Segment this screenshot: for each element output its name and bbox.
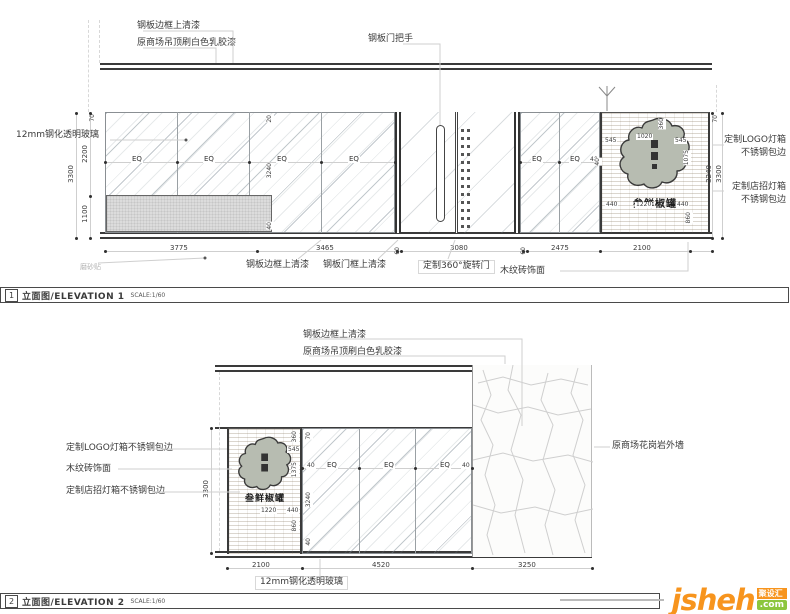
eq-label: EQ — [131, 156, 143, 163]
dim-3250: 3250 — [518, 562, 536, 569]
elevation-2-scale: SCALE:1/60 — [131, 598, 166, 605]
annotation-door-handle: 钢板门把手 — [368, 35, 413, 45]
dim-40: 40 — [594, 158, 602, 166]
dim-60: 60 — [395, 247, 401, 255]
annotation-sign-lightbox: 定制店招灯箱不锈钢包边 — [66, 487, 165, 497]
dim-4520: 4520 — [372, 562, 390, 569]
ceiling-line — [100, 63, 712, 70]
mullion — [559, 112, 560, 233]
annotation-frame-varnish-top: 钢板边框上清漆 — [137, 22, 200, 32]
extension-line — [219, 372, 220, 551]
wood-tile-logo-wall — [600, 112, 710, 233]
annotation-logo-lightbox: 定制LOGO灯箱不锈钢包边 — [66, 444, 173, 454]
dim-3300: 3300 — [203, 480, 210, 498]
dim-70: 70 — [305, 432, 313, 440]
dim-40: 40 — [306, 463, 316, 469]
annotation-revolving-door: 定制360°旋转门 — [418, 260, 495, 274]
eq-label: EQ — [203, 156, 215, 163]
watermark-cn-badge: 聚设汇 — [757, 588, 787, 599]
eq-label: EQ — [276, 156, 288, 163]
eq-label: EQ — [439, 462, 451, 469]
mullion — [359, 428, 360, 554]
annotation-tempered-glass: 12mm钢化透明玻璃 — [255, 576, 348, 590]
annotation-frosted-film: 磨砂贴 — [80, 264, 101, 272]
dim-60: 60 — [521, 247, 527, 255]
dim-360: 360 — [658, 118, 666, 129]
dim-545: 545 — [287, 447, 300, 453]
floor-line — [100, 232, 712, 239]
eq-label: EQ — [569, 156, 581, 163]
watermark-rule — [560, 599, 664, 601]
logo-text: 叁鲜椒罐 — [229, 491, 301, 504]
dim-860: 860 — [291, 520, 299, 531]
elevation-1-index: 1 — [5, 289, 18, 302]
elevation-2-index: 2 — [5, 595, 18, 608]
door-stile — [455, 112, 458, 233]
dim-3300: 3300 — [716, 165, 723, 183]
annotation-logo-lightbox-2: 不锈钢包边 — [716, 149, 786, 159]
dim-40: 40 — [305, 538, 313, 546]
dim-3465: 3465 — [316, 245, 334, 252]
eq-label: EQ — [348, 156, 360, 163]
granite-wall — [472, 365, 592, 557]
dim-2100: 2100 — [633, 245, 651, 252]
dim-3775: 3775 — [170, 245, 188, 252]
dim-1375: 1375 — [291, 462, 299, 477]
drawing-sheet: 叁鲜椒罐 EQ EQ EQ EQ EQ EQ 40 70 2200 1100 3… — [0, 0, 790, 614]
watermark-brand: jsheh — [672, 588, 755, 613]
elevation-1-title: 立面图/ELEVATION 1 — [22, 289, 125, 302]
dim-70: 70 — [713, 115, 719, 123]
eq-label: EQ — [326, 462, 338, 469]
dim-40: 40 — [461, 463, 471, 469]
mullion — [415, 428, 416, 554]
dim-20: 20 — [266, 115, 274, 123]
annotation-frame-varnish-top: 钢板边框上清漆 — [303, 331, 366, 341]
elevation-2-titlebar: 2 立面图/ELEVATION 2 SCALE:1/60 — [0, 593, 660, 609]
watermark-com-badge: .com — [757, 600, 787, 610]
dim-2475: 2475 — [551, 245, 569, 252]
annotation-ceiling-paint: 原商场吊顶刷白色乳胶漆 — [137, 39, 236, 49]
dim-3240: 3240 — [266, 163, 274, 178]
extension-line — [716, 85, 717, 112]
elevation-1-scale: SCALE:1/60 — [131, 292, 166, 299]
extension-line — [99, 20, 100, 63]
dim-40: 40 — [266, 222, 274, 230]
eq-label: EQ — [383, 462, 395, 469]
annotation-door-frame-varnish: 钢板门框上清漆 — [323, 261, 386, 271]
glass-panel — [302, 428, 472, 554]
annotation-granite-wall: 原商场花岗岩外墙 — [612, 442, 684, 452]
dim-2200: 2200 — [82, 145, 89, 163]
eq-label: EQ — [531, 156, 543, 163]
dim-1075: 1075 — [683, 150, 691, 165]
frosted-counter-panel — [106, 195, 272, 232]
door-post-left — [395, 112, 401, 233]
dim-1020: 1020 — [636, 134, 653, 140]
dim-1100: 1100 — [82, 205, 89, 223]
dim-3240: 3240 — [706, 165, 713, 183]
ceiling-line — [215, 365, 472, 372]
dim-360: 360 — [291, 431, 299, 442]
dim-440: 440 — [286, 508, 299, 514]
dim-440: 440 — [605, 202, 618, 208]
elevation-1-titlebar: 1 立面图/ELEVATION 1 SCALE:1/60 — [0, 287, 789, 303]
dim-1220: 1220 — [260, 508, 277, 514]
door-handle-shape — [436, 125, 445, 222]
dim-1220: 1220 — [635, 202, 652, 208]
watermark: jsheh 聚设汇 .com — [672, 588, 788, 613]
annotation-frame-varnish-bottom: 钢板边框上清漆 — [246, 261, 309, 271]
annotation-wood-tile: 木纹砖饰面 — [500, 267, 545, 277]
mullion — [321, 112, 322, 233]
annotation-tempered-glass: 12mm钢化透明玻璃 — [16, 131, 99, 141]
annotation-logo-lightbox: 定制LOGO灯箱 — [716, 136, 786, 146]
dim-440: 440 — [676, 202, 689, 208]
extension-line — [88, 20, 89, 112]
dim-3080: 3080 — [450, 245, 468, 252]
annotation-wood-tile: 木纹砖饰面 — [66, 465, 111, 475]
door-text-column — [467, 129, 470, 228]
dim-3240: 3240 — [305, 492, 313, 507]
dim-545: 545 — [604, 138, 617, 144]
door-text-column — [461, 129, 464, 228]
annotation-ceiling-paint: 原商场吊顶刷白色乳胶漆 — [303, 348, 402, 358]
granite-crack-texture — [473, 365, 593, 557]
annotation-sign-lightbox-2: 不锈钢包边 — [716, 196, 786, 206]
dim-3300: 3300 — [68, 165, 75, 183]
dim-2100: 2100 — [252, 562, 270, 569]
annotation-sign-lightbox: 定制店招灯箱 — [716, 183, 786, 193]
dim-70: 70 — [90, 114, 96, 122]
glass-panel-right — [520, 112, 600, 233]
elevation-2-title: 立面图/ELEVATION 2 — [22, 595, 125, 608]
dim-860: 860 — [685, 212, 693, 223]
dim-545: 545 — [674, 138, 687, 144]
